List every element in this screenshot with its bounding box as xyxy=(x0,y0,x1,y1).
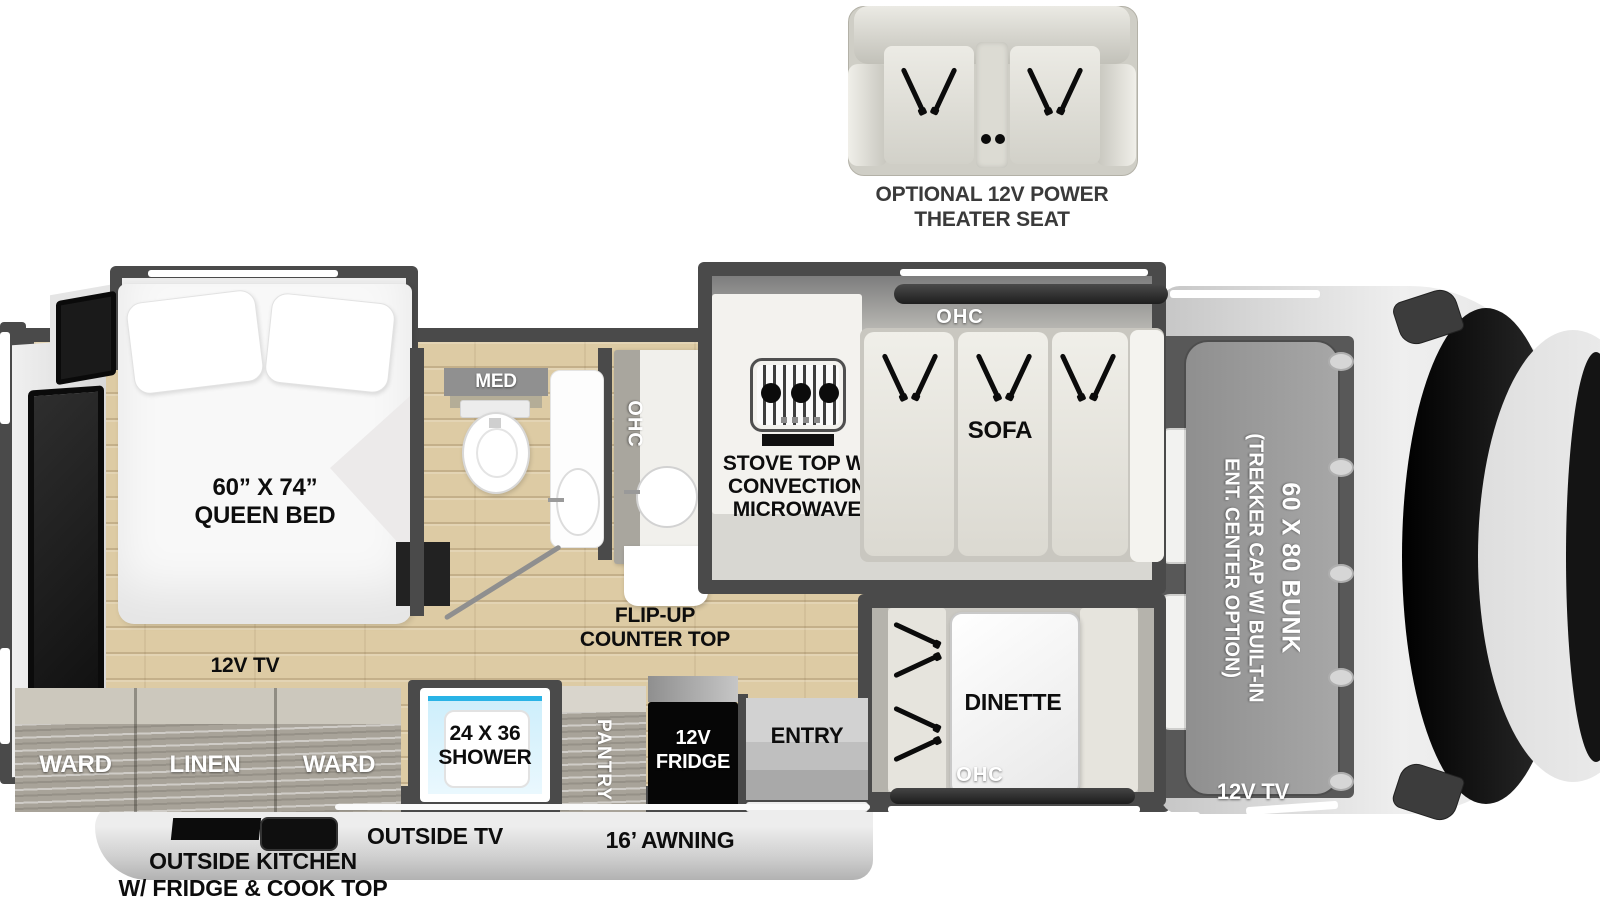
fridge-label: 12V FRIDGE xyxy=(648,726,738,774)
rear-wall-gap xyxy=(0,648,10,744)
seatbelt-icon xyxy=(878,350,942,406)
cupholder-icon xyxy=(995,134,1005,144)
rear-wall-gap xyxy=(0,332,10,424)
pillow xyxy=(264,292,397,394)
bed-size-label: 60” X 74” xyxy=(140,474,390,502)
outside-tv xyxy=(260,817,338,851)
theater-seat-armrest-left xyxy=(848,64,888,166)
roof-edge-strip xyxy=(1170,290,1320,298)
dinette-bench-backrest xyxy=(872,608,888,792)
theater-seat-label-line2: THEATER SEAT xyxy=(845,207,1139,232)
bunk-cap-label-line2: ENT. CENTER OPTION) xyxy=(1220,348,1244,788)
pantry-top xyxy=(560,686,646,712)
oven-drawer xyxy=(762,434,834,446)
dinette-ohc-label: OHC xyxy=(900,764,1060,786)
flip-up-counter-label: FLIP-UP COUNTER TOP xyxy=(560,604,750,652)
flip-up-label-line1: FLIP-UP xyxy=(560,604,750,628)
seatbelt-icon xyxy=(890,618,946,682)
faucet-icon xyxy=(548,498,564,502)
bunk-label-group: 60 X 80 BUNK (TREKKER CAP W/ BUILT-IN EN… xyxy=(1220,348,1305,788)
med-cabinet-label: MED xyxy=(444,371,548,392)
awning-rail xyxy=(894,284,1168,304)
theater-seat-label-line1: OPTIONAL 12V POWER xyxy=(845,182,1139,207)
bedroom-tv-label: 12V TV xyxy=(165,654,325,678)
roof-edge-strip xyxy=(888,806,1140,813)
faucet-icon xyxy=(624,490,640,494)
cabinet-divider xyxy=(134,688,137,812)
bedroom-side-window xyxy=(56,291,116,386)
linen-label: LINEN xyxy=(140,752,270,779)
awning-rail xyxy=(890,788,1135,804)
bunk-rivet xyxy=(1328,772,1354,791)
theater-seat-armrest-right xyxy=(1096,64,1136,166)
cab-tv-label: 12V TV xyxy=(1178,780,1328,805)
sofa-label: SOFA xyxy=(900,418,1100,445)
entry-step xyxy=(746,770,868,800)
bunk-rivet xyxy=(1328,458,1354,477)
outside-tv-label: OUTSIDE TV xyxy=(340,824,530,850)
roof-edge-strip xyxy=(1100,812,1200,820)
seatbelt-icon xyxy=(1056,350,1120,406)
outside-kitchen-label-line2: W/ FRIDGE & COOK TOP xyxy=(58,875,448,902)
wardrobe-countertop xyxy=(15,688,401,724)
flip-up-counter xyxy=(624,546,708,606)
roof-edge-strip xyxy=(438,316,643,328)
cupholder-icon xyxy=(981,134,991,144)
entry-label: ENTRY xyxy=(746,724,868,749)
kitchen-ohc-label: OHC xyxy=(623,400,646,447)
ward-left-label: WARD xyxy=(18,752,133,779)
fridge-label-line2: FRIDGE xyxy=(648,750,738,774)
bed-type-label: QUEEN BED xyxy=(140,502,390,530)
bunk-rivet xyxy=(1328,352,1354,371)
dinette-label: DINETTE xyxy=(950,690,1076,716)
seatbelt-icon xyxy=(972,350,1036,406)
outside-kitchen-label-line1: OUTSIDE KITCHEN xyxy=(58,848,448,875)
outside-kitchen-label: OUTSIDE KITCHEN W/ FRIDGE & COOK TOP xyxy=(58,848,448,902)
shower-label: 24 X 36 SHOWER xyxy=(414,722,556,770)
pantry-label: PANTRY xyxy=(592,719,614,801)
sofa-ohc-label: OHC xyxy=(880,306,1040,328)
outside-kitchen-hatch xyxy=(171,818,261,840)
bunk-cap-label-line1: (TREKKER CAP W/ BUILT-IN xyxy=(1244,348,1268,788)
theater-seat-label: OPTIONAL 12V POWER THEATER SEAT xyxy=(845,182,1139,232)
kitchen-sink-counter xyxy=(614,350,702,564)
bathroom-wall-left xyxy=(410,348,424,616)
shower-label-line1: 24 X 36 xyxy=(414,722,556,746)
sofa-armrest xyxy=(1130,330,1164,562)
theater-seat-console xyxy=(976,42,1008,168)
seatbelt-icon xyxy=(897,64,961,120)
bath-sink xyxy=(556,468,600,536)
fridge-label-line1: 12V xyxy=(648,726,738,750)
awning-label: 16’ AWNING xyxy=(540,828,800,854)
stove-top-icon xyxy=(750,358,846,432)
bunk-size-label: 60 X 80 BUNK xyxy=(1276,348,1305,788)
burner-icon xyxy=(761,383,781,403)
queen-bed-label: 60” X 74” QUEEN BED xyxy=(140,474,390,530)
rv-floorplan: OPTIONAL 12V POWER THEATER SEAT 60 X 80 … xyxy=(0,0,1600,905)
toilet-flush xyxy=(489,418,501,428)
pillow xyxy=(125,288,265,395)
slideout-roof-strip xyxy=(900,269,1148,276)
flip-up-label-line2: COUNTER TOP xyxy=(560,628,750,652)
shower-label-line2: SHOWER xyxy=(414,746,556,770)
dinette-bench-backrest xyxy=(1138,608,1154,792)
dinette-bench xyxy=(1080,608,1138,792)
toilet-bowl-inner xyxy=(476,428,518,478)
burner-icon xyxy=(819,383,839,403)
ward-right-label: WARD xyxy=(280,752,398,779)
awning-roller xyxy=(335,804,870,810)
fridge-top xyxy=(648,676,738,702)
stove-knobs xyxy=(781,417,821,423)
theater-seat-graphic xyxy=(848,6,1136,174)
rear-window xyxy=(28,385,104,718)
bunk-rivet xyxy=(1328,668,1354,687)
seatbelt-icon xyxy=(890,702,946,766)
slideout-roof-strip xyxy=(148,270,338,277)
burner-icon xyxy=(791,383,811,403)
cabinet-divider xyxy=(274,688,277,812)
bunk-rivet xyxy=(1328,564,1354,583)
seatbelt-icon xyxy=(1023,64,1087,120)
kitchen-sink xyxy=(636,466,698,528)
shower-water-line xyxy=(428,696,542,701)
